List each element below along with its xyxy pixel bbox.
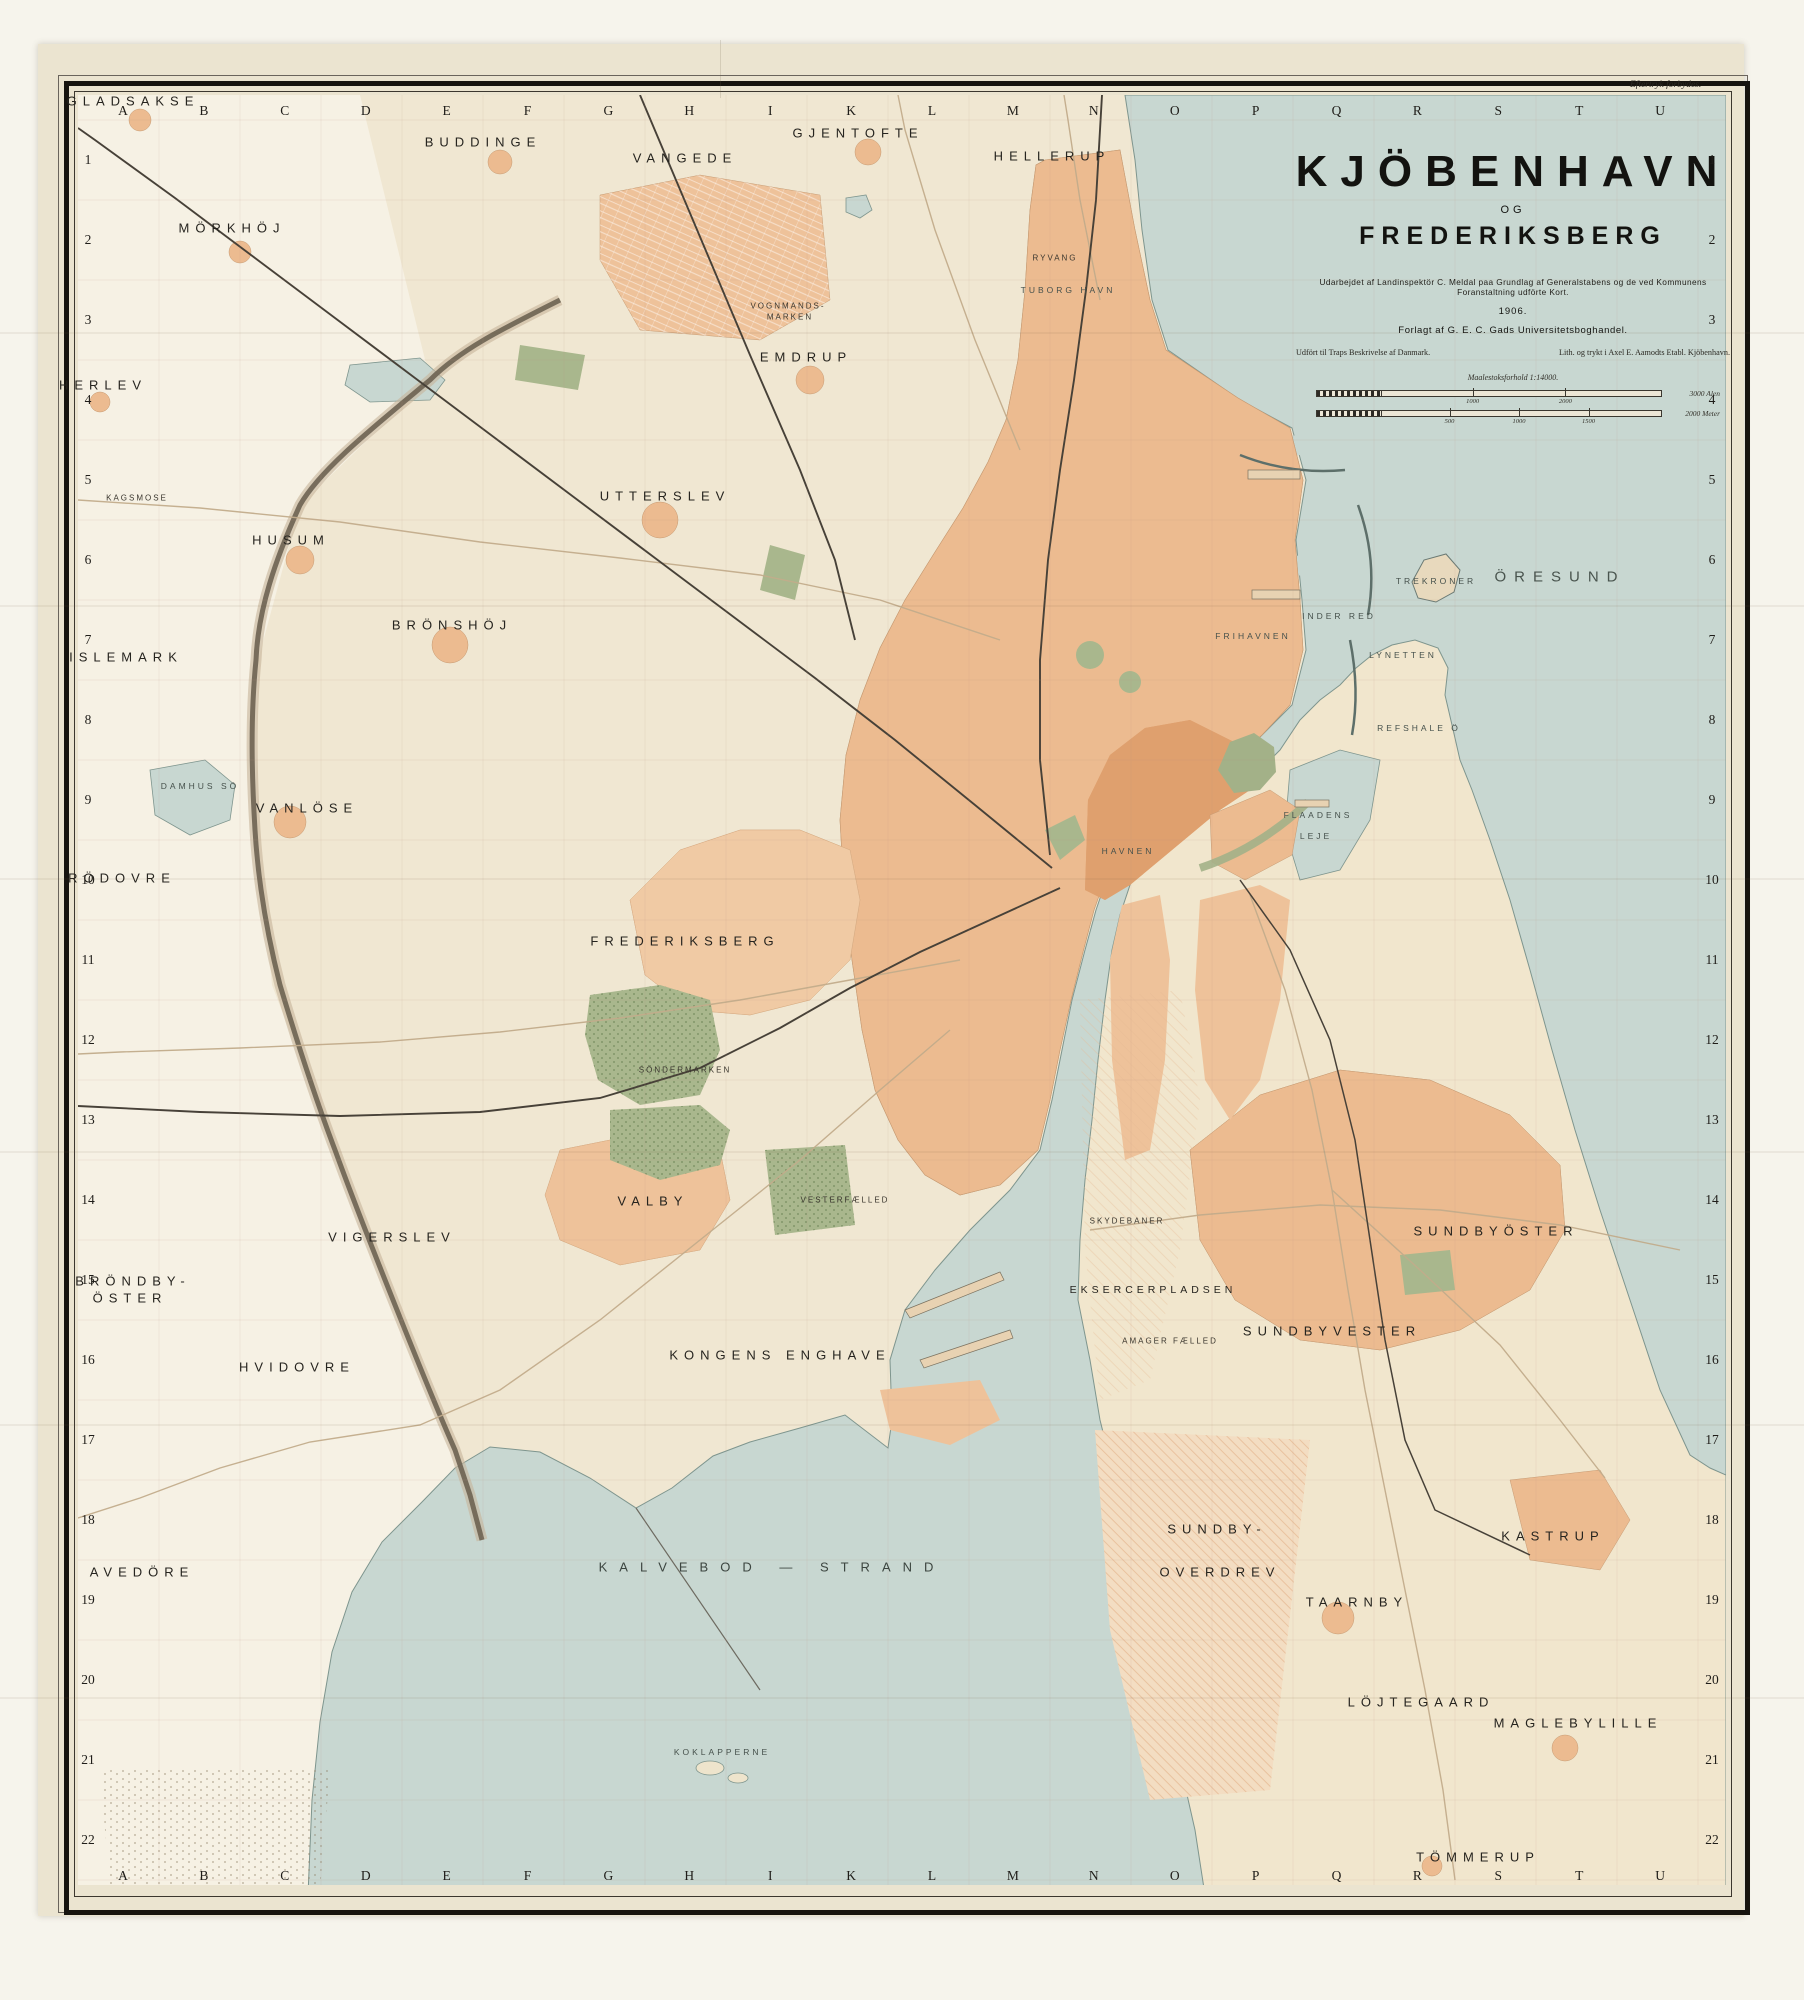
publisher-line: Forlagt af G. E. C. Gads Universitetsbog… <box>1290 325 1736 336</box>
scale-tick: 1500 <box>1582 418 1595 425</box>
grid-letter-s: S <box>1495 103 1503 119</box>
paper-fold-line <box>0 1697 1804 1699</box>
grid-letter-c: C <box>280 1868 289 1884</box>
scale-caption: Maalestoksforhold 1:14000. <box>1290 373 1736 382</box>
grid-letter-b: B <box>199 1868 208 1884</box>
grid-letter-p: P <box>1252 1868 1260 1884</box>
grid-number-5: 5 <box>85 472 92 488</box>
grid-letter-l: L <box>928 1868 936 1884</box>
grid-number-1: 1 <box>1709 152 1716 168</box>
grid-letter-i: I <box>768 103 773 119</box>
credit-line: Udarbejdet af Landinspektör C. Meldal pa… <box>1290 277 1736 297</box>
grid-number-17: 17 <box>1705 1432 1719 1448</box>
grid-number-9: 9 <box>85 792 92 808</box>
grid-letter-g: G <box>604 1868 614 1884</box>
scale-bar-2: 500100015002000 Meter <box>1316 406 1720 426</box>
grid-number-4: 4 <box>85 392 92 408</box>
scale-bar-1: 100020003000 Alen <box>1316 386 1720 406</box>
grid-number-14: 14 <box>1705 1192 1719 1208</box>
grid-letter-n: N <box>1089 103 1099 119</box>
grid-letter-t: T <box>1575 1868 1583 1884</box>
title-block: KJÖBENHAVN OG FREDERIKSBERG Udarbejdet a… <box>1290 150 1736 470</box>
grid-number-7: 7 <box>1709 632 1716 648</box>
grid-letter-a: A <box>118 103 128 119</box>
grid-number-22: 22 <box>1705 1832 1719 1848</box>
grid-letter-n: N <box>1089 1868 1099 1884</box>
grid-letter-h: H <box>684 103 694 119</box>
grid-number-12: 12 <box>81 1032 95 1048</box>
grid-letter-g: G <box>604 103 614 119</box>
grid-letter-q: Q <box>1332 1868 1342 1884</box>
scale-tick: 1000 <box>1466 398 1479 405</box>
note-right: Lith. og trykt i Axel E. Aamodts Etabl. … <box>1559 348 1730 357</box>
paper-seam <box>720 40 721 98</box>
map-title-conjunction: OG <box>1290 204 1736 216</box>
grid-number-19: 19 <box>1705 1592 1719 1608</box>
scale-bars: 100020003000 Alen500100015002000 Meter <box>1316 386 1720 426</box>
grid-number-5: 5 <box>1709 472 1716 488</box>
grid-number-3: 3 <box>1709 312 1716 328</box>
scale-tick: 500 <box>1445 418 1455 425</box>
grid-letter-f: F <box>524 103 532 119</box>
paper-fold-line <box>0 878 1804 880</box>
grid-number-18: 18 <box>1705 1512 1719 1528</box>
grid-number-13: 13 <box>81 1112 95 1128</box>
grid-number-6: 6 <box>1709 552 1716 568</box>
grid-letter-a: A <box>118 1868 128 1884</box>
grid-number-21: 21 <box>1705 1752 1719 1768</box>
grid-letter-d: D <box>361 1868 371 1884</box>
grid-number-8: 8 <box>1709 712 1716 728</box>
grid-letter-d: D <box>361 103 371 119</box>
grid-number-17: 17 <box>81 1432 95 1448</box>
grid-number-15: 15 <box>81 1272 95 1288</box>
grid-letter-r: R <box>1413 1868 1422 1884</box>
grid-number-11: 11 <box>82 952 95 968</box>
grid-letter-t: T <box>1575 103 1583 119</box>
scale-end-label: 2000 Meter <box>1685 409 1720 418</box>
grid-number-3: 3 <box>85 312 92 328</box>
grid-number-9: 9 <box>1709 792 1716 808</box>
map-title: KJÖBENHAVN <box>1290 150 1736 194</box>
grid-letter-q: Q <box>1332 103 1342 119</box>
grid-letter-m: M <box>1007 103 1019 119</box>
grid-letter-b: B <box>199 103 208 119</box>
grid-letter-f: F <box>524 1868 532 1884</box>
grid-number-22: 22 <box>81 1832 95 1848</box>
grid-letter-p: P <box>1252 103 1260 119</box>
grid-number-15: 15 <box>1705 1272 1719 1288</box>
grid-number-10: 10 <box>81 872 95 888</box>
marsh-flats <box>100 1770 330 1885</box>
grid-letter-l: L <box>928 103 936 119</box>
grid-number-19: 19 <box>81 1592 95 1608</box>
grid-letter-i: I <box>768 1868 773 1884</box>
grid-letter-u: U <box>1655 1868 1665 1884</box>
grid-number-14: 14 <box>81 1192 95 1208</box>
grid-number-21: 21 <box>81 1752 95 1768</box>
grid-number-4: 4 <box>1709 392 1716 408</box>
grid-number-10: 10 <box>1705 872 1719 888</box>
note-left: Udfört til Traps Beskrivelse af Danmark. <box>1296 348 1430 357</box>
paper-fold-line <box>0 1151 1804 1153</box>
grid-letter-h: H <box>684 1868 694 1884</box>
grid-letter-r: R <box>1413 103 1422 119</box>
grid-letter-k: K <box>846 103 856 119</box>
paper-fold-line <box>0 1424 1804 1426</box>
grid-number-1: 1 <box>85 152 92 168</box>
map-subtitle: FREDERIKSBERG <box>1290 222 1736 251</box>
grid-letter-m: M <box>1007 1868 1019 1884</box>
grid-number-2: 2 <box>1709 232 1716 248</box>
paper-fold-line <box>0 332 1804 334</box>
grid-letter-s: S <box>1495 1868 1503 1884</box>
grid-letter-o: O <box>1170 103 1180 119</box>
scale-tick: 1000 <box>1513 418 1526 425</box>
grid-number-12: 12 <box>1705 1032 1719 1048</box>
map-year: 1906. <box>1290 306 1736 317</box>
grid-number-13: 13 <box>1705 1112 1719 1128</box>
grid-letter-c: C <box>280 103 289 119</box>
grid-number-2: 2 <box>85 232 92 248</box>
paper-fold-line <box>0 605 1804 607</box>
grid-number-7: 7 <box>85 632 92 648</box>
scale-tick: 2000 <box>1559 398 1572 405</box>
grid-number-16: 16 <box>1705 1352 1719 1368</box>
grid-letter-u: U <box>1655 103 1665 119</box>
grid-number-16: 16 <box>81 1352 95 1368</box>
grid-letter-o: O <box>1170 1868 1180 1884</box>
grid-number-20: 20 <box>81 1672 95 1688</box>
grid-number-20: 20 <box>1705 1672 1719 1688</box>
grid-letter-e: E <box>442 103 450 119</box>
grid-number-8: 8 <box>85 712 92 728</box>
imprint-note: Eftertryk forbydes. <box>1630 80 1701 90</box>
grid-number-6: 6 <box>85 552 92 568</box>
grid-number-11: 11 <box>1706 952 1719 968</box>
grid-letter-k: K <box>846 1868 856 1884</box>
grid-letter-e: E <box>442 1868 450 1884</box>
grid-number-18: 18 <box>81 1512 95 1528</box>
